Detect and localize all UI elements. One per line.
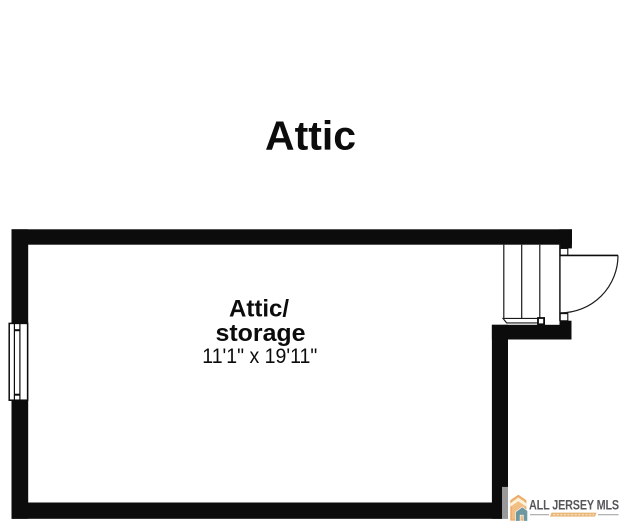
- svg-text:11'1" x 19'11": 11'1" x 19'11": [202, 344, 317, 368]
- svg-text:storage: storage: [216, 320, 306, 347]
- svg-text:Attic: Attic: [265, 113, 356, 159]
- svg-text:Attic/: Attic/: [229, 296, 289, 323]
- svg-text:ALL JERSEY MLS: ALL JERSEY MLS: [529, 498, 619, 514]
